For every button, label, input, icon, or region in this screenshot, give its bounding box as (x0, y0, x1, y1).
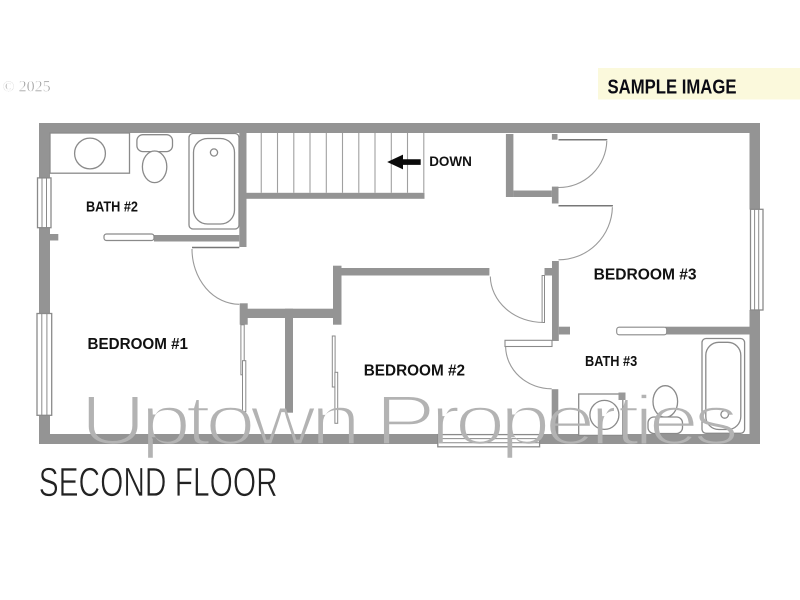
svg-text:SECOND FLOOR: SECOND FLOOR (39, 459, 278, 505)
svg-text:SAMPLE IMAGE: SAMPLE IMAGE (608, 77, 737, 99)
svg-text:DOWN: DOWN (429, 153, 472, 169)
svg-text:BEDROOM #1: BEDROOM #1 (88, 336, 189, 353)
svg-text:© 2025: © 2025 (3, 79, 51, 96)
svg-text:BATH #2: BATH #2 (86, 200, 138, 216)
svg-text:BEDROOM #3: BEDROOM #3 (594, 267, 697, 284)
